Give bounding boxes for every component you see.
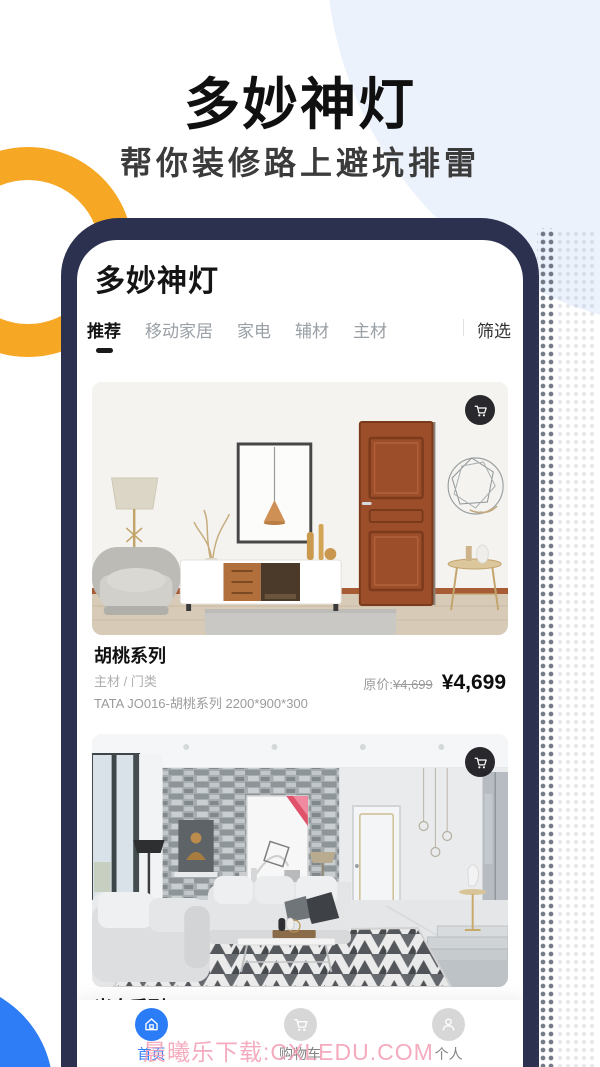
- nav-label-cart: 购物车: [279, 1044, 321, 1064]
- nav-label-profile: 个人: [435, 1044, 463, 1064]
- cart-icon: [472, 402, 489, 419]
- add-to-cart-button[interactable]: [465, 747, 495, 777]
- walnut-room-illustration: [92, 382, 508, 635]
- dot-pattern-faint-decoration: [554, 228, 598, 1067]
- offwhite-room-illustration: [92, 734, 508, 987]
- nav-item-cart[interactable]: 购物车: [226, 1000, 375, 1067]
- product-name: 胡桃系列: [94, 642, 506, 668]
- tab-appliances[interactable]: 家电: [237, 317, 271, 342]
- product-image-offwhite-series[interactable]: [92, 734, 508, 987]
- dot-pattern-decoration: [537, 228, 554, 1067]
- add-to-cart-button[interactable]: [465, 395, 495, 425]
- product-sku: TATA JO016-胡桃系列 2200*900*300: [94, 693, 506, 712]
- product-card[interactable]: 米白系列 主材 / 门类 原价: ¥4,199 ¥4,199: [92, 734, 508, 1042]
- hero-subtitle: 帮你装修路上避坑排雷: [0, 138, 600, 184]
- home-icon: [135, 1008, 168, 1041]
- tab-recommended[interactable]: 推荐: [87, 317, 121, 353]
- app-screen: 多妙神灯 推荐 移动家居 家电 辅材 主材 筛选: [77, 240, 523, 1067]
- original-price-value: ¥4,699: [393, 677, 433, 692]
- category-tab-bar: 推荐 移动家居 家电 辅材 主材 筛选: [77, 317, 523, 351]
- product-card[interactable]: 胡桃系列 主材 / 门类 TATA JO016-胡桃系列 2200*900*30…: [92, 382, 508, 712]
- tab-mobile-furniture[interactable]: 移动家居: [145, 317, 213, 342]
- promo-screenshot: 多妙神灯 帮你装修路上避坑排雷 多妙神灯 推荐 移动家居 家电 辅材 主材 筛选: [0, 0, 600, 1067]
- sale-price: ¥4,699: [442, 671, 506, 695]
- original-price-label: 原价:: [363, 674, 393, 693]
- phone-mockup-frame: 多妙神灯 推荐 移动家居 家电 辅材 主材 筛选: [61, 218, 539, 1067]
- price-row: 原价: ¥4,699 ¥4,699: [363, 671, 506, 695]
- cart-icon: [472, 754, 489, 771]
- product-image-walnut-series[interactable]: [92, 382, 508, 635]
- hero-title: 多妙神灯: [0, 60, 600, 141]
- blue-circle-decoration: [0, 982, 53, 1067]
- active-tab-underline: [96, 348, 113, 353]
- user-icon: [432, 1008, 465, 1041]
- filter-button[interactable]: 筛选: [477, 317, 511, 342]
- tab-auxiliary-materials[interactable]: 辅材: [295, 317, 329, 342]
- cart-icon: [284, 1008, 317, 1041]
- product-info: 胡桃系列 主材 / 门类 TATA JO016-胡桃系列 2200*900*30…: [92, 635, 508, 712]
- bottom-nav-bar: 首页 购物车: [77, 1000, 523, 1067]
- nav-item-profile[interactable]: 个人: [374, 1000, 523, 1067]
- tab-main-materials[interactable]: 主材: [353, 317, 387, 342]
- nav-label-home: 首页: [137, 1044, 165, 1064]
- app-title: 多妙神灯: [95, 256, 505, 300]
- filter-divider: [463, 319, 464, 336]
- nav-item-home[interactable]: 首页: [77, 1000, 226, 1067]
